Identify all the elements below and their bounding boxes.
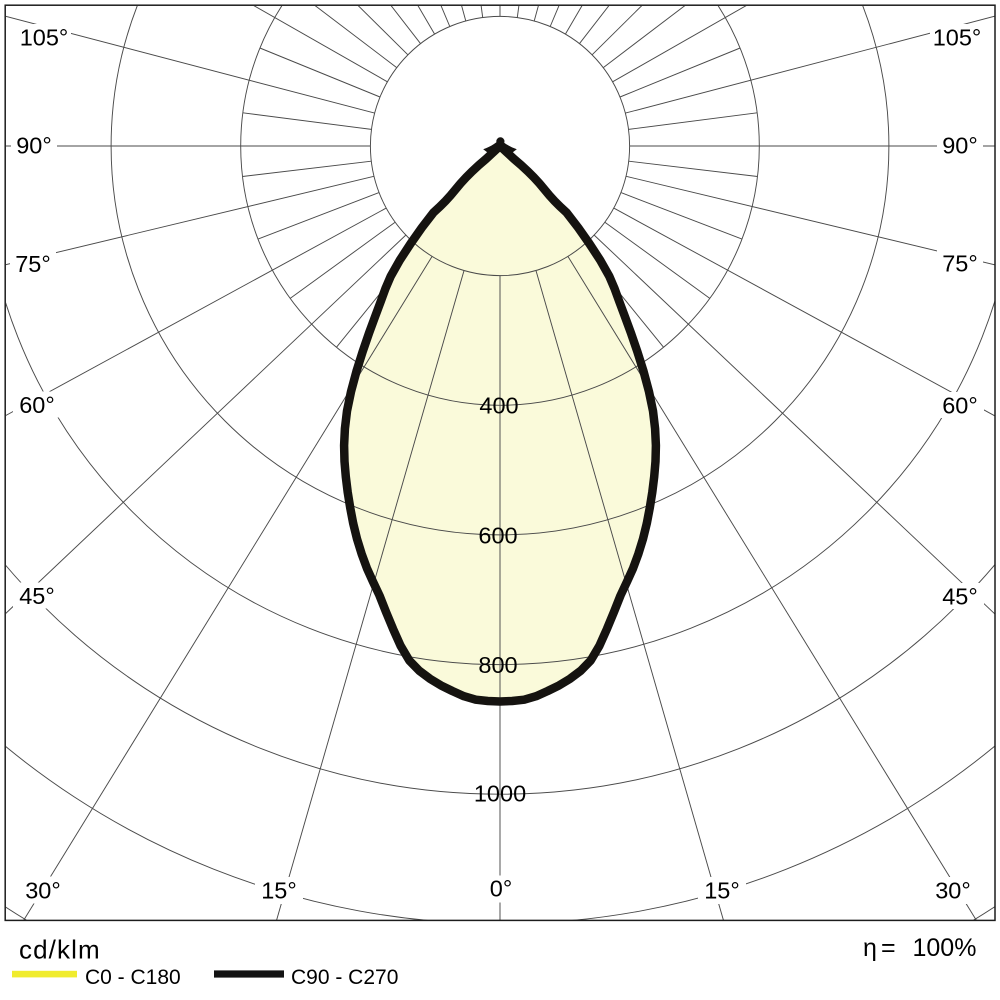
svg-text:15°: 15° (261, 877, 297, 903)
svg-text:C0 - C180: C0 - C180 (85, 966, 181, 989)
svg-text:15°: 15° (704, 877, 740, 903)
svg-text:=: = (881, 934, 896, 962)
svg-text:60°: 60° (19, 392, 55, 418)
svg-text:75°: 75° (942, 250, 978, 276)
svg-text:90°: 90° (942, 132, 978, 158)
svg-text:105°: 105° (933, 24, 982, 50)
svg-text:400: 400 (479, 392, 518, 418)
svg-text:105°: 105° (20, 24, 69, 50)
svg-text:C90 - C270: C90 - C270 (291, 966, 398, 989)
svg-text:30°: 30° (935, 877, 971, 903)
svg-text:η: η (863, 934, 877, 962)
svg-text:30°: 30° (25, 877, 61, 903)
svg-text:800: 800 (478, 652, 517, 678)
svg-text:cd/klm: cd/klm (19, 935, 101, 965)
svg-text:0°: 0° (490, 875, 512, 901)
svg-text:1000: 1000 (474, 780, 526, 806)
svg-text:60°: 60° (942, 392, 978, 418)
svg-text:90°: 90° (16, 132, 52, 158)
svg-text:75°: 75° (15, 251, 51, 277)
svg-text:100%: 100% (913, 934, 977, 962)
svg-text:45°: 45° (942, 583, 978, 609)
svg-text:45°: 45° (19, 583, 55, 609)
svg-text:600: 600 (478, 522, 517, 548)
